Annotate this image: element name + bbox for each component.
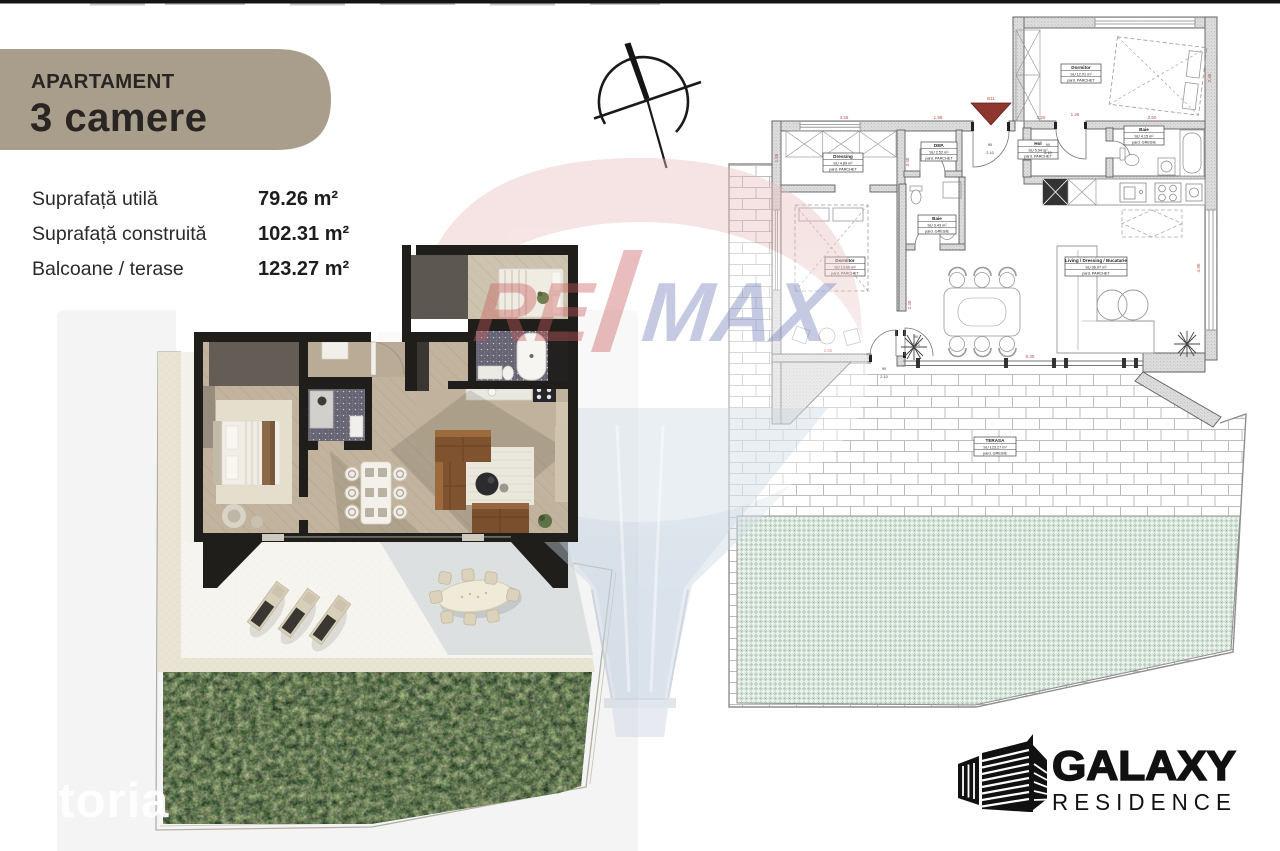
svg-text:79.26 m²: 79.26 m² [258,188,338,210]
svg-text:1.55: 1.55 [774,153,779,162]
svg-text:Suprafață utilă: Suprafață utilă [32,188,158,210]
svg-text:SU 4.15 m²: SU 4.15 m² [1134,134,1154,138]
svg-text:90: 90 [914,335,918,339]
svg-text:pard. PARCHET: pard. PARCHET [925,157,953,161]
svg-text:Living / Dressing / Bucatarie: Living / Dressing / Bucatarie [1065,258,1127,263]
svg-text:SU 2.52 m²: SU 2.52 m² [929,150,949,154]
svg-text:2.50: 2.50 [1148,115,1157,120]
svg-text:8.30: 8.30 [1026,354,1035,359]
svg-text:storia: storia [30,774,169,828]
svg-text:TERASA: TERASA [986,438,1006,443]
svg-text:B11: B11 [987,96,995,101]
svg-text:3.26: 3.26 [840,115,849,120]
svg-text:RESIDENCE: RESIDENCE [1052,789,1237,815]
svg-text:Baie: Baie [1139,127,1149,132]
svg-text:Suprafață construită: Suprafață construită [32,223,207,245]
svg-text:102.31 m²: 102.31 m² [258,223,350,245]
svg-text:pard. PARCHET: pard. PARCHET [1024,155,1052,159]
svg-text:MAX: MAX [638,265,839,359]
svg-text:SU 12.01 m²: SU 12.01 m² [1070,72,1092,76]
svg-text:pard. GRESIE: pard. GRESIE [1132,141,1157,145]
svg-text:Dormitor: Dormitor [1071,65,1091,70]
svg-text:3.40: 3.40 [905,157,910,166]
svg-text:90: 90 [1046,143,1050,147]
svg-text:RE: RE [470,265,599,359]
svg-text:1.98: 1.98 [934,115,943,120]
svg-text:Dressing: Dressing [833,154,853,159]
svg-text:SU 3.43 m²: SU 3.43 m² [927,223,947,227]
svg-text:2.10: 2.10 [880,375,887,379]
svg-text:SU 4.89 m²: SU 4.89 m² [833,161,853,165]
svg-text:SU 36.07 m²: SU 36.07 m² [1085,265,1107,269]
svg-text:2.10: 2.10 [1044,151,1051,155]
svg-text:pard. PARCHET: pard. PARCHET [829,168,857,172]
svg-text:90: 90 [882,367,886,371]
svg-text:123.27 m²: 123.27 m² [258,258,350,280]
svg-text:Hol: Hol [1034,141,1041,146]
svg-text:pard. GRESIE: pard. GRESIE [983,452,1008,456]
svg-text:pard. GRESIE: pard. GRESIE [925,230,950,234]
svg-text:Balcoane / terase: Balcoane / terase [32,258,184,280]
svg-text:2.10: 2.10 [986,151,993,155]
svg-text:2.30: 2.30 [907,300,912,309]
svg-text:APARTAMENT: APARTAMENT [31,70,175,93]
svg-text:4.90: 4.90 [1196,263,1201,272]
svg-text:GALAXY: GALAXY [1052,742,1236,789]
svg-text:pard. PARCHET: pard. PARCHET [1067,79,1095,83]
svg-text:3 camere: 3 camere [30,96,207,140]
svg-text:Baie: Baie [932,216,942,221]
svg-text:2.46: 2.46 [1207,73,1212,82]
svg-text:DEP.: DEP. [934,143,944,148]
svg-text:90: 90 [988,143,992,147]
svg-text:pard. PARCHET: pard. PARCHET [1082,272,1110,276]
svg-text:SU 123.27 m²: SU 123.27 m² [983,445,1007,449]
svg-text:1.26: 1.26 [1071,112,1080,117]
svg-text:2.10: 2.10 [912,343,919,347]
svg-text:3.20: 3.20 [1037,115,1046,120]
